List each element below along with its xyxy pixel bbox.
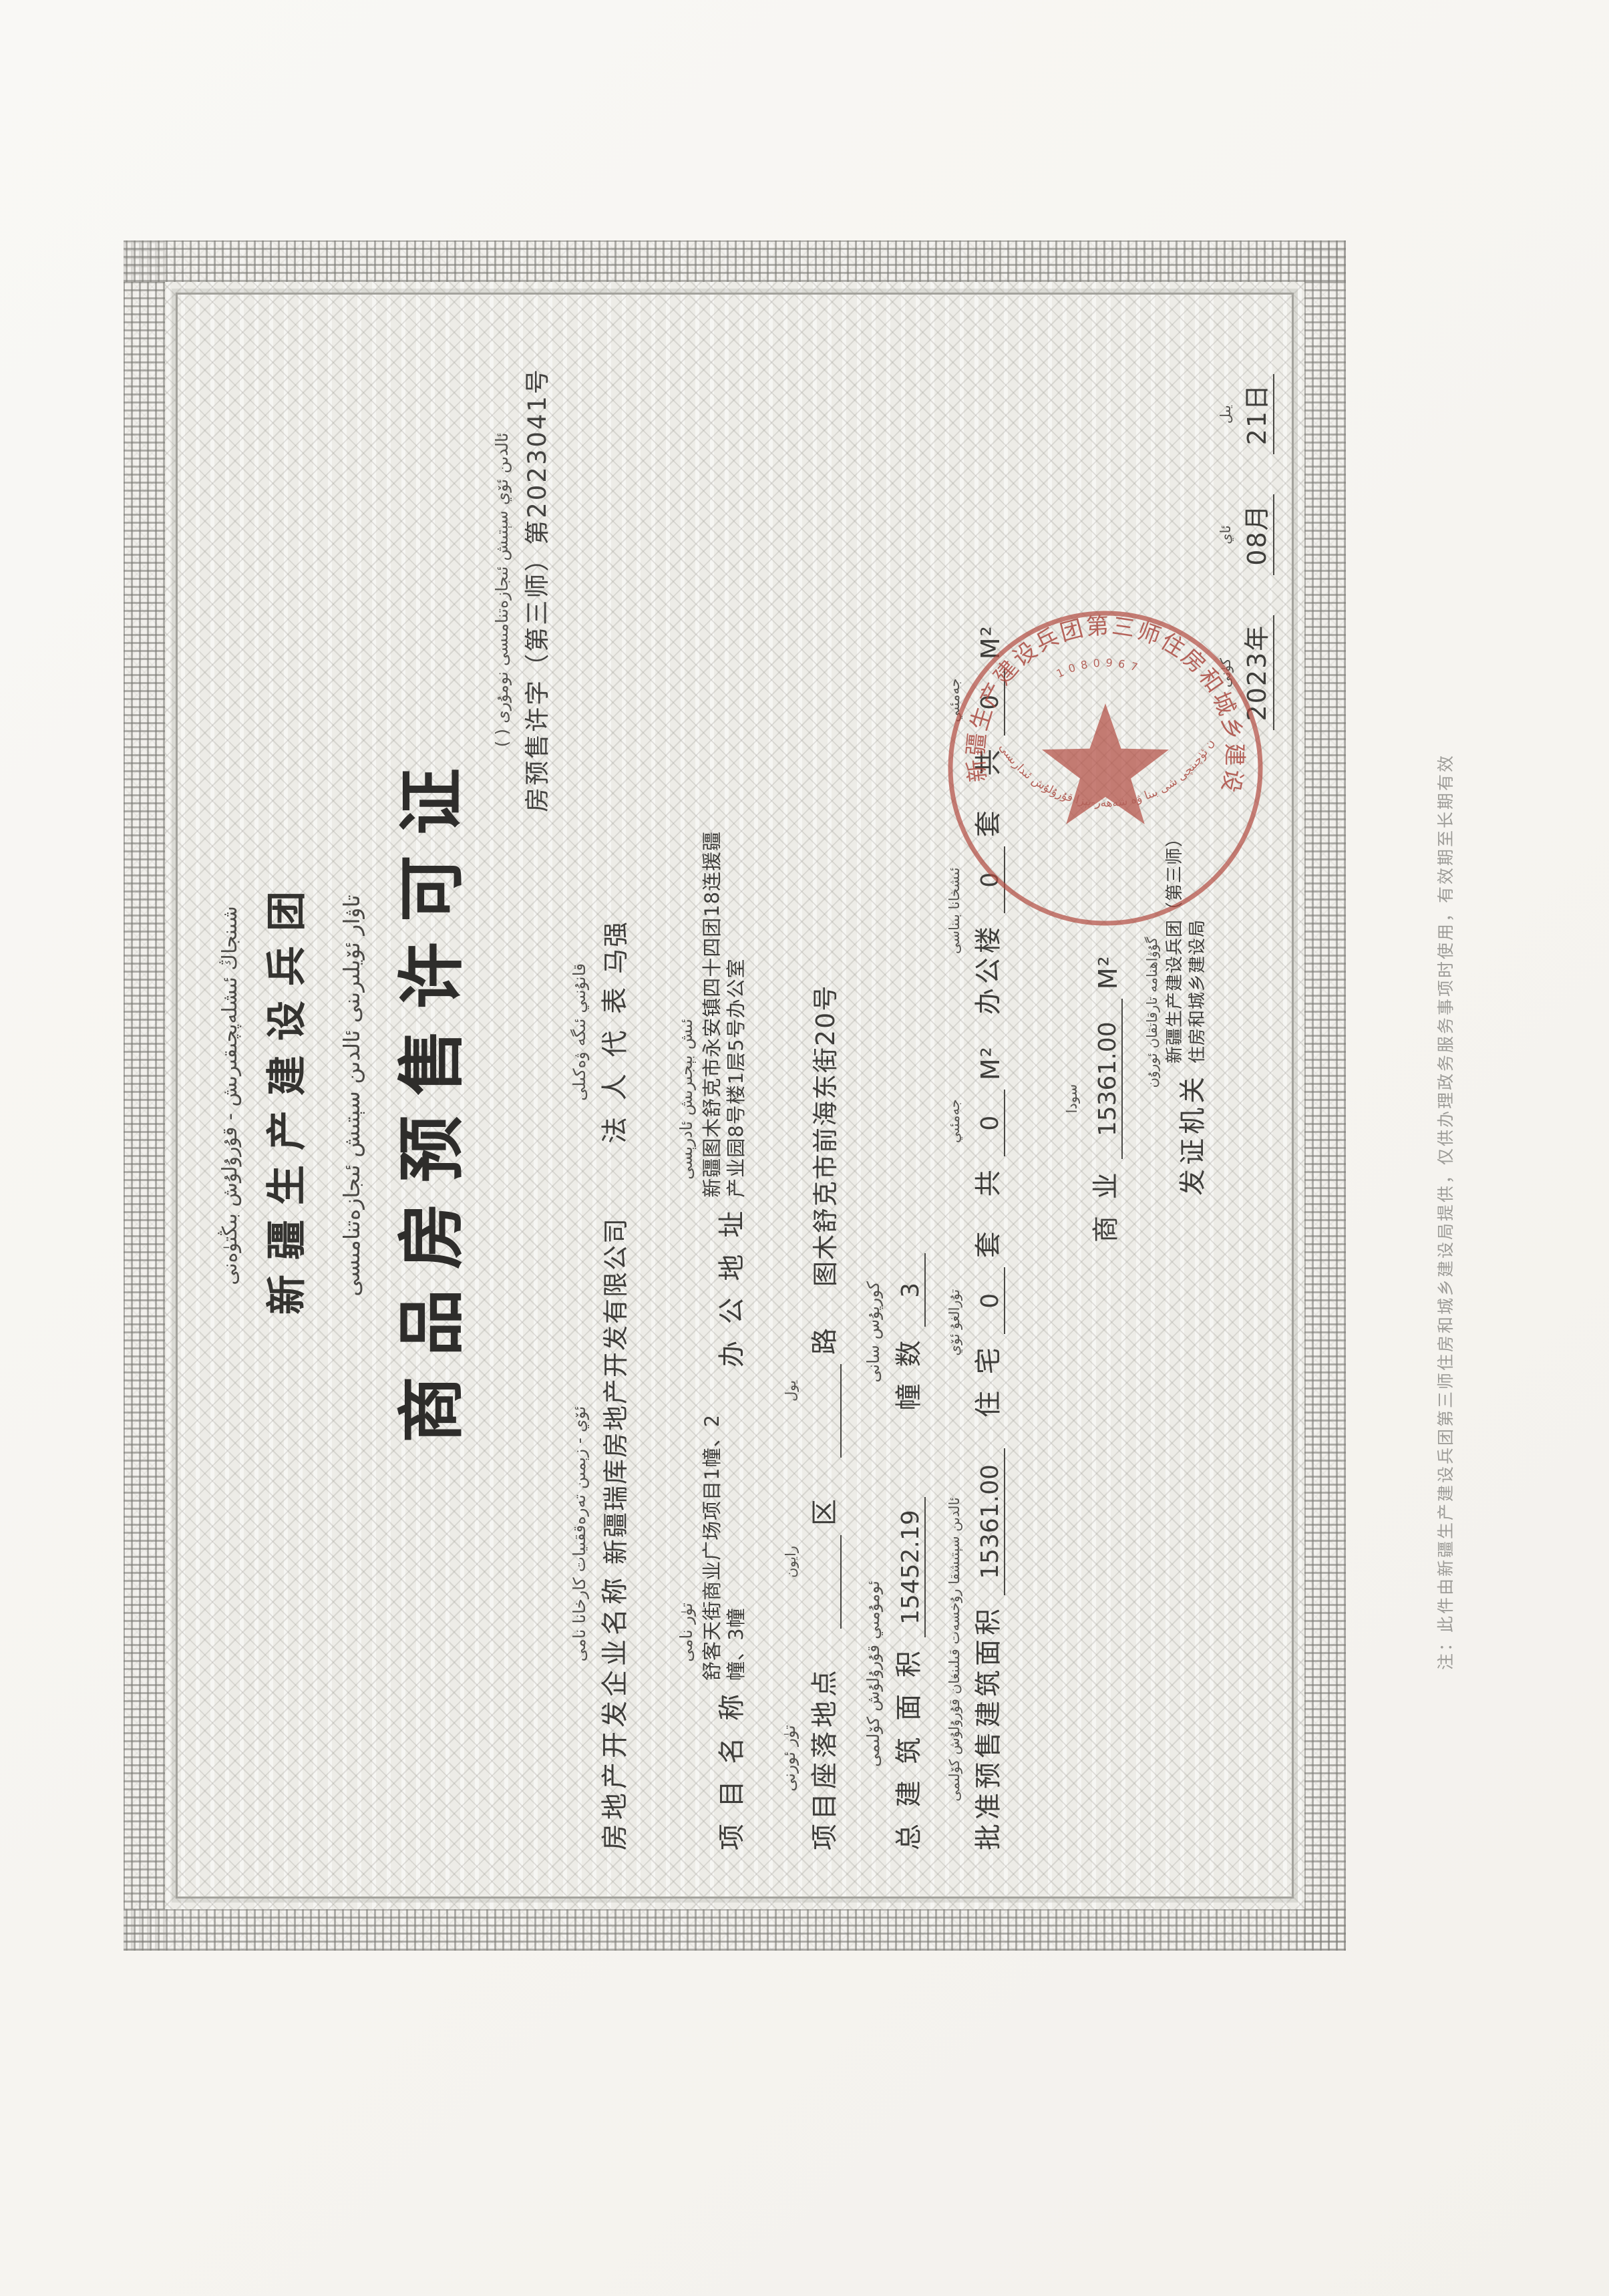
row-location: تۈر ئورنى 项目座落地点 رايون 区 يول 路 bbox=[779, 341, 842, 1850]
field-location-label: 项目座落地点 bbox=[803, 1666, 842, 1850]
border-ornament-left bbox=[124, 1909, 1346, 1951]
permit-number-block: ئالدىن ئۆي سېتىش ئىجازەتنامىسى نومۇرى ( … bbox=[492, 367, 553, 812]
residential-unit: M² bbox=[976, 1045, 1005, 1080]
field-location: تۈر ئورنى 项目座落地点 bbox=[779, 1666, 842, 1850]
field-developer-value: 新疆瑞库房地产开发有限公司 bbox=[595, 1217, 632, 1565]
seal-serial: 1080967 bbox=[1055, 656, 1144, 680]
border-ornament-top bbox=[124, 240, 165, 1951]
field-approved-area: ئالدىن سېتىشقا رۇخسەت قىلىنغان قۇرۇلۇش ك… bbox=[946, 1448, 1005, 1850]
scanned-page: شىنجاڭ ئىشلەپچىقىرىش - قۇرۇلۇش بىڭتۈەنى … bbox=[0, 0, 1609, 2296]
field-residential-label: 住 宅 bbox=[966, 1343, 1005, 1418]
field-developer-label: 房地产开发企业名称 bbox=[593, 1574, 632, 1850]
row-developer: ئۆي - زېمىن تەرەققىيات كارخانا نامى 房地产开… bbox=[570, 341, 632, 1850]
field-office-address: ئىش بېجىرىش ئادرېسى 办 公 地 址 新疆图木舒克市永安镇四十… bbox=[677, 831, 749, 1367]
side-note: 注：此件由新疆生产建设兵团第三师住房和城乡建设局提供，仅供办理政务服务事项时使用… bbox=[1433, 935, 1459, 1670]
road-uyghur: يول bbox=[783, 1380, 799, 1402]
field-commercial-value: 15361.00 bbox=[1094, 999, 1123, 1159]
row-issue-date: كۈنى 2023年 ئاي 08月 يىل 21日 bbox=[1218, 374, 1274, 1850]
date-month-value: 08月 bbox=[1236, 494, 1274, 575]
field-developer-uyghur: ئۆي - زېمىن تەرەققىيات كارخانا نامى bbox=[570, 1406, 589, 1662]
residential-tao-label: 套 bbox=[966, 1227, 1005, 1258]
field-location-value: 图木舒克市前海东街20号 bbox=[805, 985, 842, 1287]
field-location-value-wrap: 图木舒克市前海东街20号 bbox=[805, 985, 842, 1287]
official-seal: 新疆生产建设兵团第三师住房和城乡建设局 بىڭتۈەن ئۈچىنچى شى ب… bbox=[940, 603, 1270, 933]
svg-text:1080967: 1080967 bbox=[1055, 656, 1144, 680]
date-day: يىل 21日 bbox=[1218, 374, 1274, 454]
document-title: 商品房预售许可证 bbox=[377, 341, 474, 1850]
permit-number-uyghur: ئالدىن ئۆي سېتىش ئىجازەتنامىسى نومۇرى ( … bbox=[492, 432, 512, 747]
residential-gong-label: 共 bbox=[966, 1166, 1005, 1196]
date-day-value: 21日 bbox=[1236, 374, 1274, 454]
field-office-address-value-line1: 新疆图木舒克市永安镇四十四团18连援疆 bbox=[700, 831, 724, 1198]
field-project-name-value-line1: 舒客天街商业广场项目1幢、2 bbox=[700, 1414, 724, 1681]
row-approved-area: ئالدىن سېتىشقا رۇخسەت قىلىنغان قۇرۇلۇش ك… bbox=[946, 341, 1005, 1850]
district-blank bbox=[840, 1535, 842, 1629]
field-approved-area-uyghur: ئالدىن سېتىشقا رۇخسەت قىلىنغان قۇرۇلۇش ك… bbox=[946, 1497, 962, 1802]
field-project-name-label: 项 目 名 称 bbox=[710, 1690, 749, 1850]
row-project-address: تۈر نامى 项 目 名 称 舒客天街商业广场项目1幢、2 幢、3幢 ئىش… bbox=[677, 341, 749, 1850]
district-uyghur: رايون bbox=[783, 1546, 799, 1578]
header-chinese: 新疆生产建设兵团 bbox=[254, 341, 313, 1850]
field-building-count: كورپۇس سانى 幢 数 3 bbox=[864, 1253, 926, 1410]
field-residential-uyghur: تۇرالغۇ ئۆي bbox=[946, 1289, 962, 1356]
field-legal-rep-uyghur: قانۇنىي ئىگە ۋەكىلى bbox=[570, 963, 589, 1101]
field-building-count-value: 3 bbox=[897, 1253, 926, 1327]
border-ornament-right bbox=[124, 240, 1346, 282]
row-total-area: ئومۇمىي قۇرۇلۇش كۆلىمى 总 建 筑 面 积 15452.1… bbox=[864, 341, 926, 1850]
field-commercial-uyghur: سودا bbox=[1064, 1084, 1080, 1114]
permit-number: 房预售许字（第三师）第2023041号 bbox=[517, 367, 553, 812]
field-office-address-label: 办 公 地 址 bbox=[710, 1207, 749, 1367]
field-office-building-label: 办公楼 bbox=[966, 923, 1005, 1015]
road-blank bbox=[840, 1364, 842, 1458]
field-legal-rep-value: 马强 bbox=[595, 921, 632, 974]
field-building-count-uyghur: كورپۇس سانى bbox=[864, 1281, 883, 1383]
field-total-area-label: 总 建 筑 面 积 bbox=[887, 1647, 926, 1850]
field-approved-area-label: 批准预售建筑面积 bbox=[966, 1605, 1005, 1850]
field-issuer-uyghur: گۇۋاھنامە تارقاتقان ئورۇن bbox=[1144, 937, 1160, 1088]
field-developer: ئۆي - زېمىن تەرەققىيات كارخانا نامى 房地产开… bbox=[570, 1217, 632, 1850]
field-project-name: تۈر نامى 项 目 名 称 舒客天街商业广场项目1幢、2 幢、3幢 bbox=[677, 1414, 749, 1850]
field-residential-units: 0 bbox=[976, 1267, 1005, 1334]
field-legal-rep: قانۇنىي ئىگە ۋەكىلى 法 人 代 表 马强 bbox=[570, 921, 632, 1144]
field-location-road: يول 路 bbox=[783, 1324, 842, 1458]
field-location-uyghur: تۈر ئورنى bbox=[779, 1725, 799, 1792]
road-label: 路 bbox=[803, 1324, 842, 1355]
field-location-district: رايون 区 bbox=[783, 1495, 842, 1629]
header-uyghur: شىنجاڭ ئىشلەپچىقىرىش - قۇرۇلۇش بىڭتۈەنى bbox=[218, 341, 242, 1850]
field-total-area-uyghur: ئومۇمىي قۇرۇلۇش كۆلىمى bbox=[864, 1581, 883, 1767]
district-label: 区 bbox=[803, 1495, 842, 1526]
field-project-name-uyghur: تۈر نامى bbox=[677, 1603, 696, 1662]
field-residential-total: جەمئىي 共 0 M² bbox=[946, 1045, 1005, 1196]
field-commercial: سودا 商 业 15361.00 M² bbox=[1064, 955, 1123, 1243]
field-total-area: ئومۇمىي قۇرۇلۇش كۆلىمى 总 建 筑 面 积 15452.1… bbox=[864, 1497, 926, 1850]
title-uyghur: تاۋار ئۆيلىرىنى ئالدىن سېتىش ئىجازەتنامى… bbox=[339, 341, 365, 1850]
field-approved-area-value: 15361.00 bbox=[976, 1448, 1005, 1595]
field-total-area-value: 15452.19 bbox=[897, 1497, 926, 1637]
commercial-unit: M² bbox=[1093, 955, 1123, 989]
date-month-uyghur: ئاي bbox=[1218, 525, 1234, 544]
field-project-name-value-line2: 幢、3幢 bbox=[724, 1414, 748, 1681]
date-month: ئاي 08月 bbox=[1218, 494, 1274, 575]
field-building-count-label: 幢 数 bbox=[887, 1336, 926, 1410]
field-residential: تۇرالغۇ ئۆي 住 宅 0 套 bbox=[946, 1227, 1005, 1418]
field-office-address-uyghur: ئىش بېجىرىش ئادرېسى bbox=[677, 1019, 696, 1180]
field-commercial-label: 商 业 bbox=[1084, 1168, 1123, 1243]
field-issuer-label: 发证机关 bbox=[1171, 1073, 1210, 1196]
border-ornament-bottom bbox=[1304, 240, 1346, 1951]
certificate-sheet: شىنجاڭ ئىشلەپچىقىرىش - قۇرۇلۇش بىڭتۈەنى … bbox=[124, 240, 1346, 1951]
date-day-uyghur: يىل bbox=[1218, 405, 1234, 424]
residential-total-uyghur: جەمئىي bbox=[946, 1099, 962, 1143]
field-office-address-value-line2: 产业园8号楼1层5号办公室 bbox=[724, 831, 748, 1198]
field-legal-rep-label: 法 人 代 表 bbox=[593, 983, 632, 1144]
field-residential-area: 0 bbox=[976, 1090, 1005, 1156]
